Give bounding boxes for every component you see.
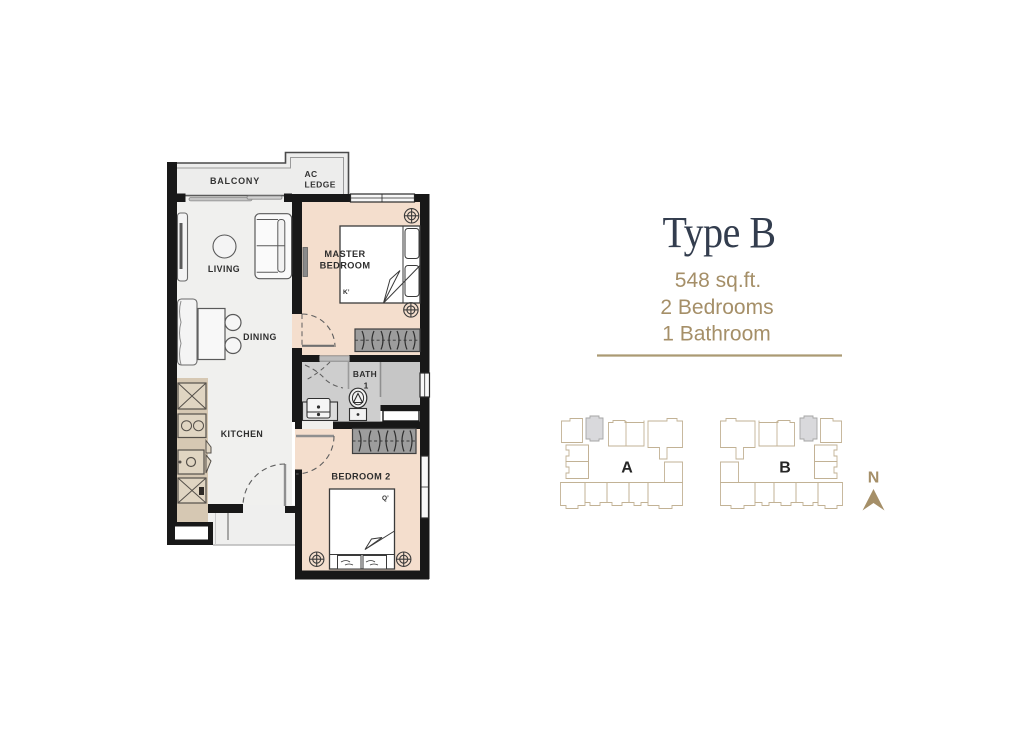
svg-text:1: 1 — [364, 381, 369, 391]
svg-text:AC: AC — [305, 169, 318, 179]
svg-text:DINING: DINING — [243, 332, 277, 342]
svg-text:LEDGE: LEDGE — [305, 180, 336, 190]
svg-text:BEDROOM 2: BEDROOM 2 — [331, 472, 390, 482]
svg-text:K’: K’ — [343, 289, 350, 296]
svg-text:Type B: Type B — [662, 208, 775, 258]
svg-text:BEDROOM: BEDROOM — [320, 261, 371, 271]
svg-text:MASTER: MASTER — [324, 249, 365, 259]
svg-text:BATH: BATH — [353, 369, 377, 379]
svg-text:2 Bedrooms: 2 Bedrooms — [660, 296, 773, 319]
svg-text:A: A — [621, 460, 633, 477]
svg-text:B: B — [779, 460, 791, 477]
svg-text:1 Bathroom: 1 Bathroom — [662, 323, 771, 346]
svg-text:KITCHEN: KITCHEN — [221, 429, 264, 439]
svg-text:BALCONY: BALCONY — [210, 176, 260, 186]
svg-text:548 sq.ft.: 548 sq.ft. — [675, 269, 761, 292]
svg-text:LIVING: LIVING — [208, 264, 240, 274]
svg-text:Q’: Q’ — [382, 495, 389, 502]
svg-text:N: N — [868, 470, 880, 487]
